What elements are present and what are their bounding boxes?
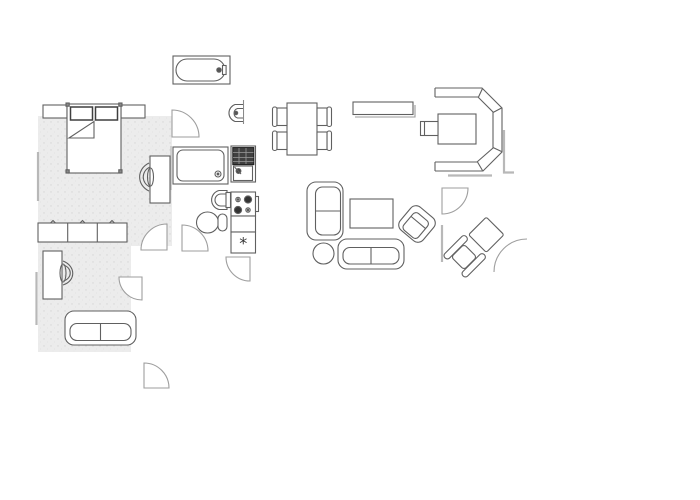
fridge-freezer: *	[231, 232, 256, 253]
dining-table	[287, 103, 317, 155]
door-arc-bottom	[144, 363, 169, 388]
door-arc-kitchen	[226, 257, 250, 281]
wardrobe-cabinet	[38, 221, 127, 243]
desk	[43, 251, 62, 299]
burner	[244, 196, 251, 203]
nightstand-right	[121, 105, 145, 118]
kitchen-column: *	[231, 146, 259, 253]
double-bed	[66, 103, 122, 173]
nook-table	[438, 114, 476, 144]
shower-tray	[173, 147, 228, 184]
door-arc-bathroom	[172, 110, 199, 137]
study-sofa	[65, 311, 136, 345]
bathtub	[173, 56, 230, 84]
two-seat-sofa-horizontal	[338, 239, 404, 269]
pillow	[71, 107, 93, 120]
ottoman	[469, 217, 504, 252]
armchair	[396, 203, 438, 245]
living-room-furniture	[307, 182, 506, 278]
nightstand-left	[43, 105, 67, 118]
wall-sink	[229, 100, 244, 124]
washbasin	[212, 191, 231, 210]
tub-drain	[217, 68, 221, 72]
dining-chair	[317, 131, 332, 151]
sideboard	[353, 102, 415, 117]
kitchen-sink-unit	[231, 146, 256, 182]
corner-nook	[421, 88, 503, 171]
pillow	[96, 107, 118, 120]
dining-chair	[273, 131, 288, 151]
kitchen-counter	[231, 216, 256, 232]
drainer-grate	[233, 148, 254, 165]
freezer-symbol: *	[239, 234, 247, 253]
floor-plan-canvas: *	[0, 0, 700, 500]
stove	[231, 192, 259, 216]
round-side-table	[313, 243, 334, 264]
stove-handle	[256, 197, 259, 212]
door-arc-right	[442, 188, 468, 214]
coffee-table	[350, 199, 393, 228]
wall-segment	[504, 130, 514, 173]
nook-chair	[421, 122, 439, 136]
dining-set	[273, 102, 416, 155]
door-arc-entry	[494, 239, 527, 272]
burner	[234, 206, 241, 213]
dining-chair	[317, 107, 332, 127]
toilet	[197, 212, 228, 233]
loveseat-sofa-vertical	[307, 182, 343, 240]
tub-tap	[223, 66, 227, 75]
lounge-chair-ottoman	[443, 215, 507, 279]
dining-chair	[273, 107, 288, 127]
